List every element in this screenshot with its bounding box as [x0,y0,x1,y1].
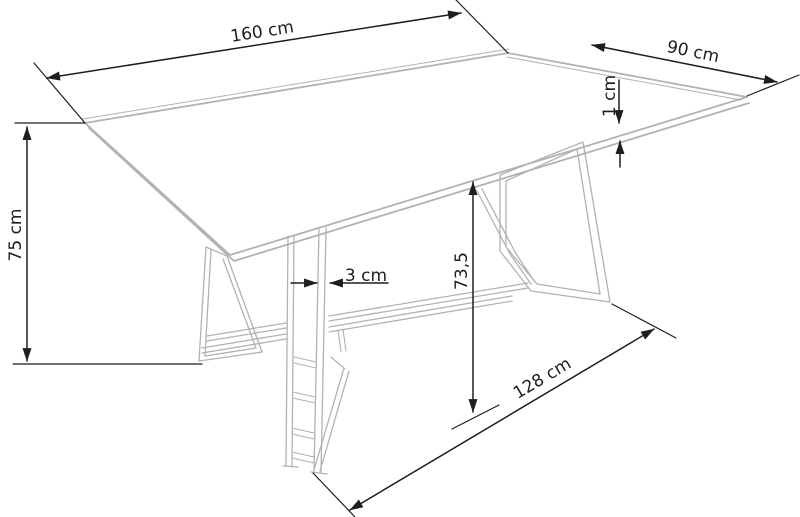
leg-tube-front [286,236,288,466]
dimension-lines [13,0,799,517]
tabletop-back-edge-line [83,49,509,119]
dim-label-top-depth: 90 cm [665,37,721,67]
dimension-labels: 160 cm 90 cm 1 cm 75 cm 3 cm 73,5 128 cm [6,17,721,403]
tabletop-outline [83,49,749,261]
dim-label-total-height: 75 cm [6,209,26,262]
table-outline [83,49,749,474]
drawing-canvas: 160 cm 90 cm 1 cm 75 cm 3 cm 73,5 128 cm [0,0,800,517]
ext-128-right [612,304,676,338]
leg-tube-rear [314,229,319,472]
table-dimension-drawing: 160 cm 90 cm 1 cm 75 cm 3 cm 73,5 128 cm [0,0,800,517]
ext-160-left [34,63,85,123]
dim-label-underside-clearance: 73,5 [452,252,472,290]
ext-160-right [456,0,508,53]
ext-128-left [313,473,355,517]
dim-label-top-length: 160 cm [229,17,295,47]
dim-label-top-thickness: 1 cm [600,75,620,117]
arrow-lines [27,13,777,510]
dim-line-128 [350,329,654,510]
stretcher-outline [202,283,528,353]
extension-lines [13,0,799,517]
dim-label-tube-width: 3 cm [345,266,387,286]
left-leg-outline [199,228,349,474]
